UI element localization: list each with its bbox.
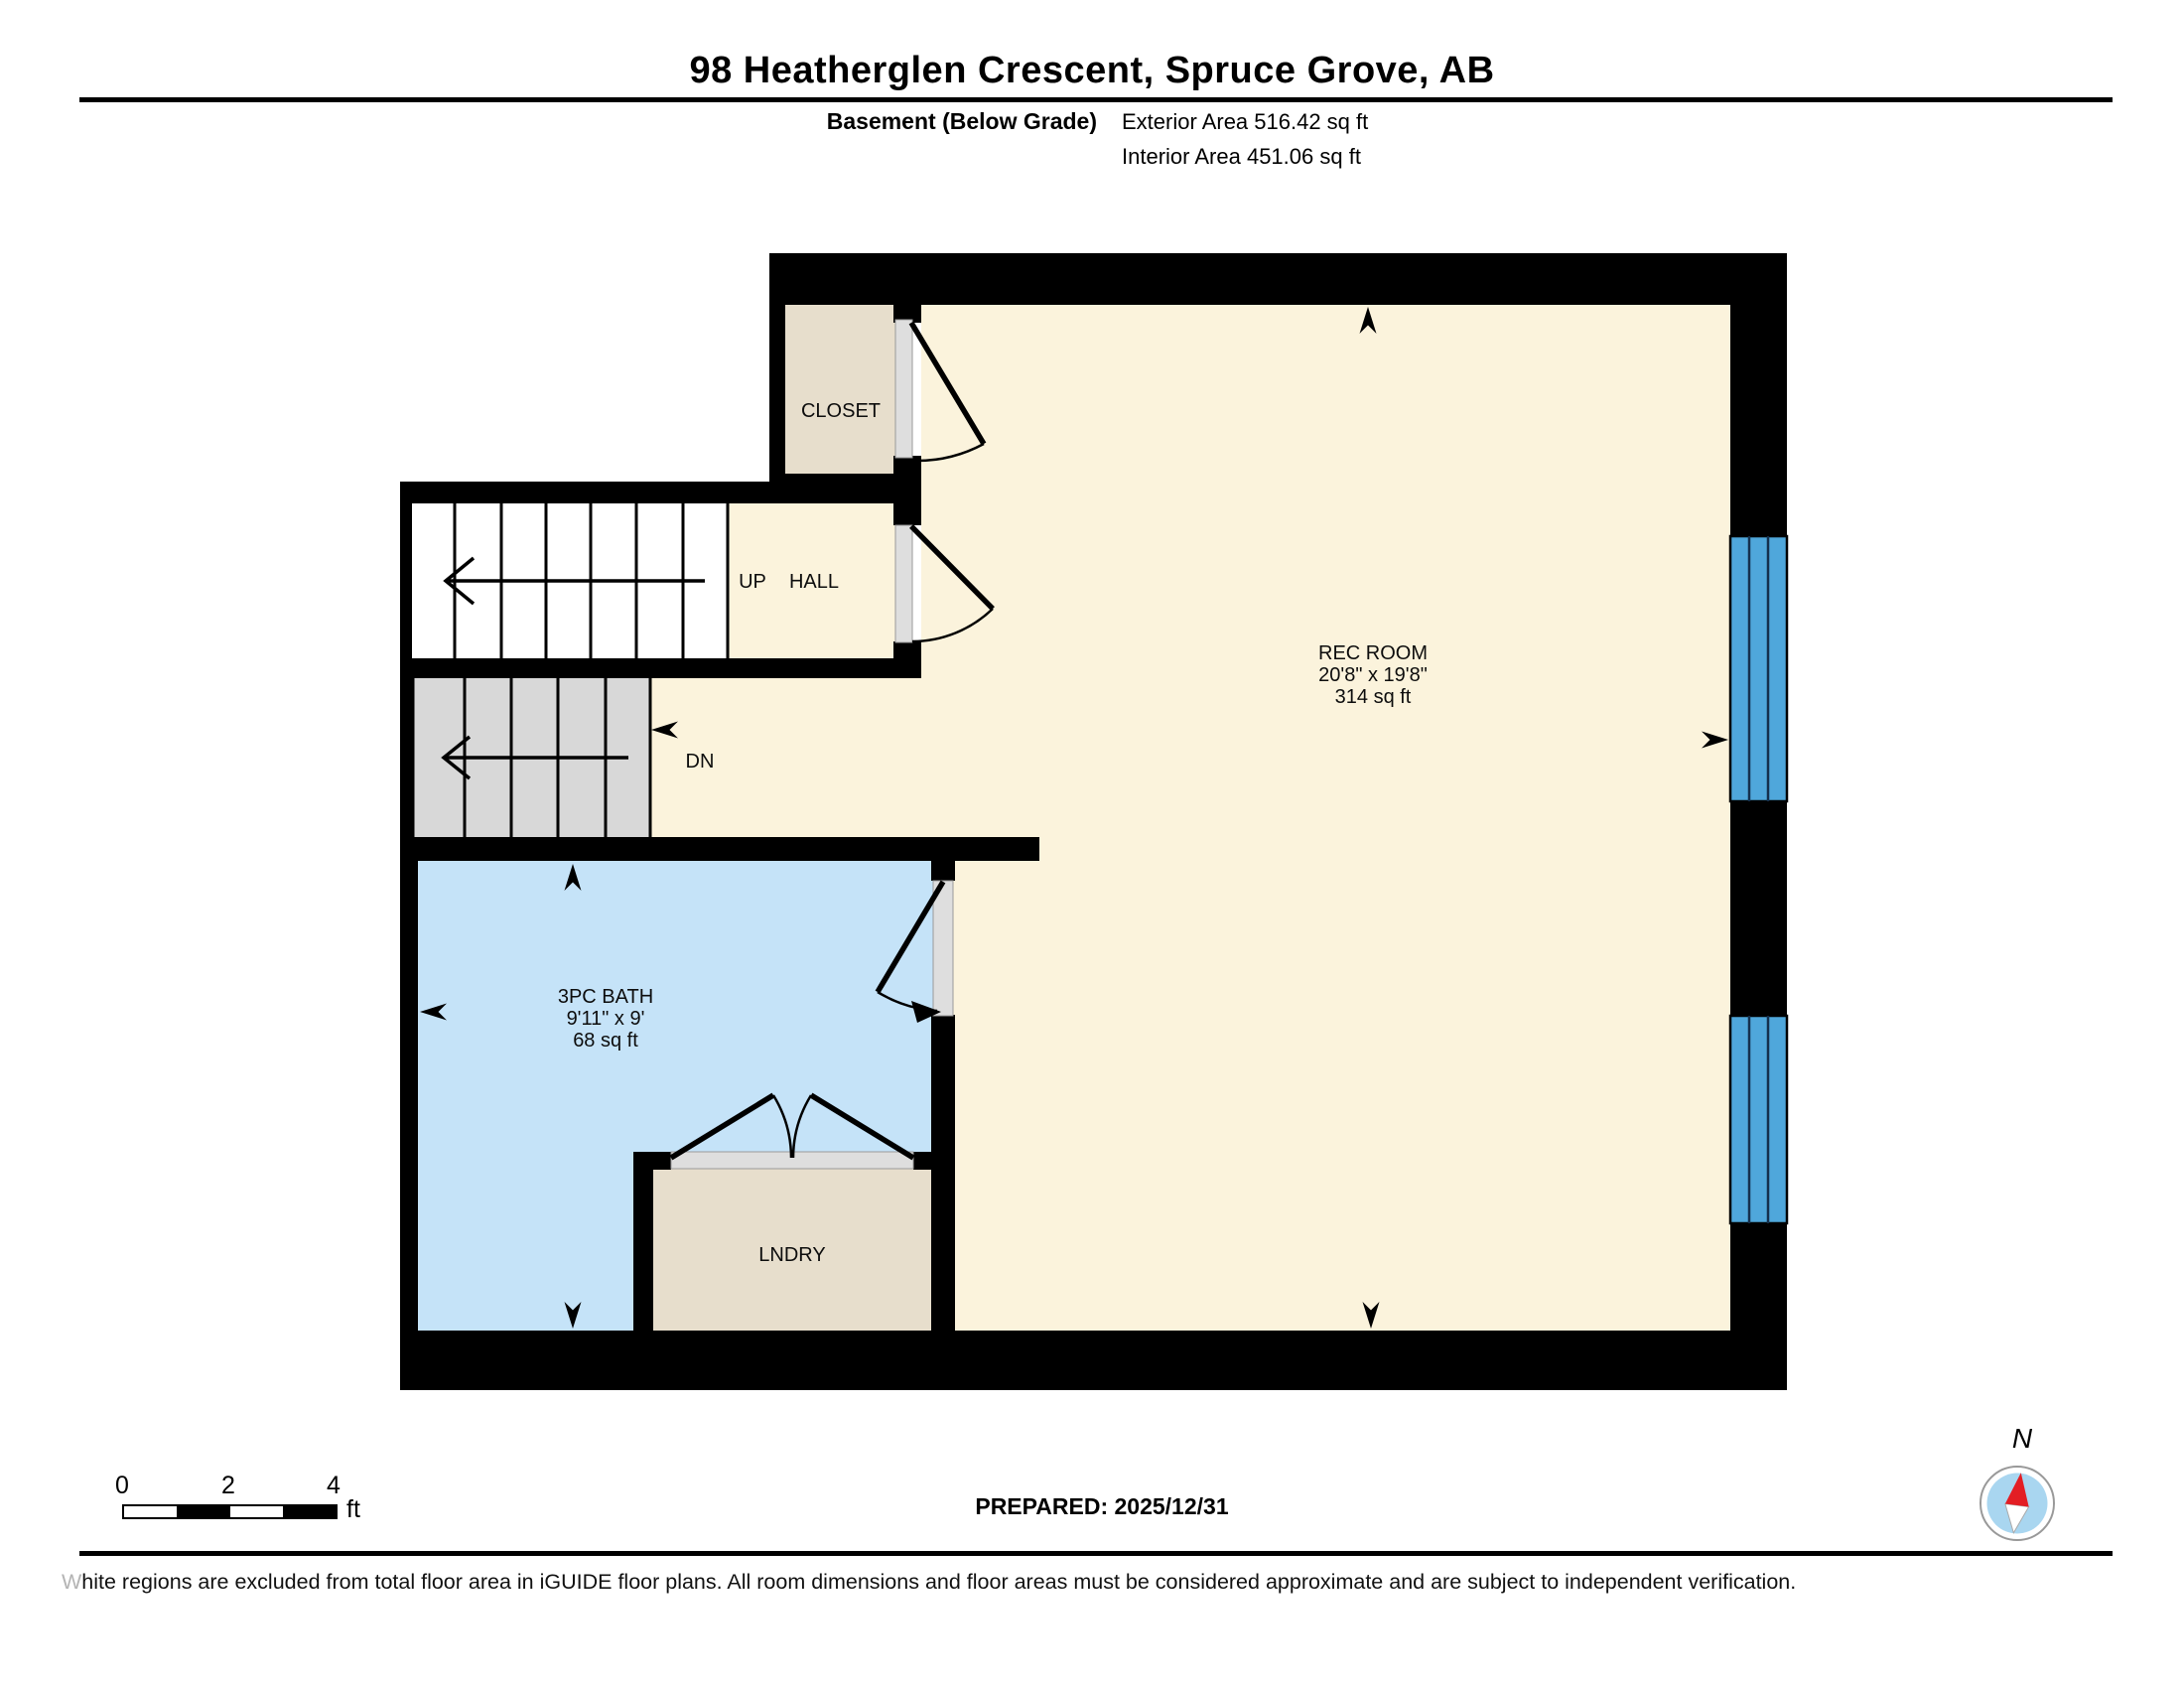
bath-dimensions: 9'11" x 9' — [567, 1008, 645, 1030]
window-upper — [1730, 536, 1787, 801]
closet-label: CLOSET — [801, 400, 881, 422]
disclaimer-text: White regions are excluded from total fl… — [62, 1570, 1796, 1595]
scale-tick-0: 0 — [107, 1472, 137, 1500]
stairs-up — [410, 501, 728, 660]
disclaimer-rest: hite regions are excluded from total flo… — [81, 1570, 1796, 1594]
bath-area: 68 sq ft — [573, 1030, 638, 1052]
scale-bar — [122, 1504, 338, 1519]
window-lower — [1730, 1016, 1787, 1223]
floorplan-page: 98 Heatherglen Crescent, Spruce Grove, A… — [0, 0, 2184, 1688]
stairs-down — [413, 676, 650, 839]
floorplan-drawing: CLOSET UP HALL DN REC ROOM 20'8" x 19'8"… — [0, 0, 2184, 1688]
compass: N — [1970, 1422, 2069, 1556]
scale-tick-2: 2 — [213, 1472, 243, 1500]
stairs-down-label: DN — [686, 751, 715, 773]
rec-room-area: 314 sq ft — [1335, 686, 1412, 708]
bath-label: 3PC BATH — [558, 986, 653, 1008]
rec-room-floor — [921, 305, 1730, 662]
laundry-label: LNDRY — [758, 1244, 825, 1266]
rec-room-label: REC ROOM — [1318, 642, 1428, 664]
compass-north-label: N — [2012, 1423, 2033, 1454]
footer-divider — [79, 1551, 2113, 1556]
disclaimer-lead: W — [62, 1570, 81, 1594]
closet-floor — [785, 305, 896, 476]
stairs-up-label: UP — [739, 571, 766, 593]
rec-room-dimensions: 20'8" x 19'8" — [1318, 664, 1428, 686]
scale-unit-label: ft — [346, 1495, 360, 1524]
prepared-date: PREPARED: 2025/12/31 — [893, 1493, 1310, 1520]
scale-tick-4: 4 — [319, 1472, 348, 1500]
hall-label: HALL — [789, 571, 839, 593]
